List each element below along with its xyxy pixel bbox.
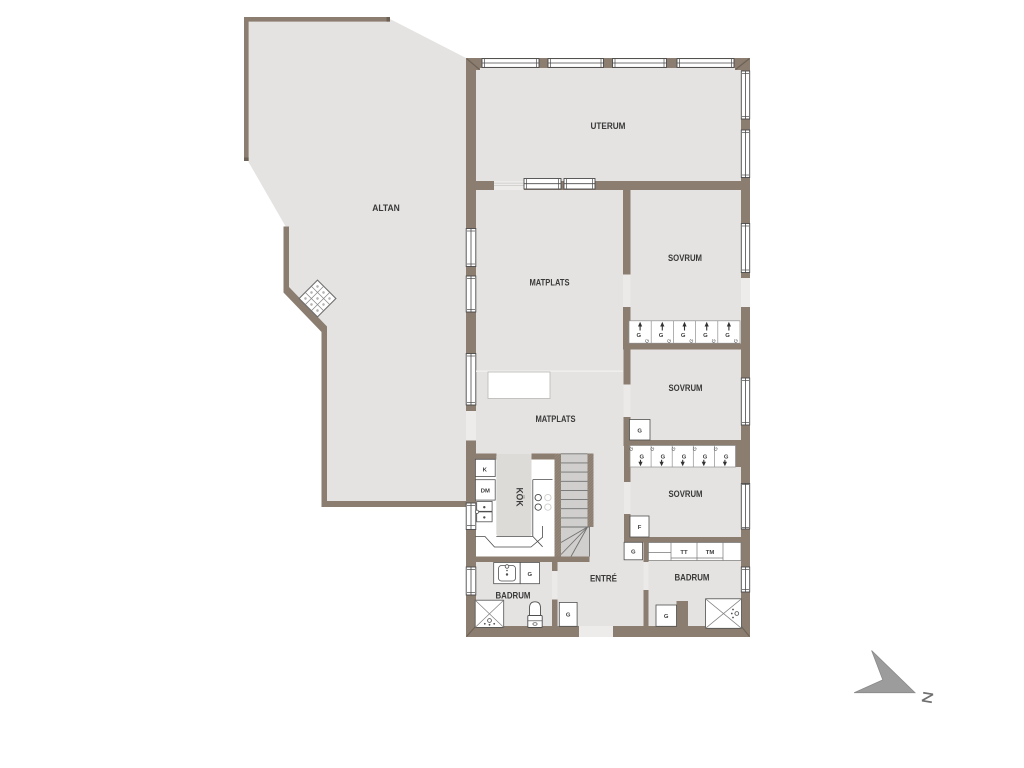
svg-text:G: G [703, 454, 708, 460]
svg-text:G: G [681, 333, 686, 339]
svg-text:TM: TM [706, 550, 715, 556]
svg-text:BADRUM: BADRUM [675, 573, 710, 583]
svg-text:G: G [637, 333, 642, 339]
svg-text:G: G [528, 572, 533, 578]
svg-text:BADRUM: BADRUM [496, 591, 531, 601]
svg-text:UTERUM: UTERUM [591, 121, 626, 131]
svg-text:G: G [637, 428, 642, 434]
svg-text:G: G [661, 454, 666, 460]
svg-text:SOVRUM: SOVRUM [669, 383, 703, 393]
svg-text:G: G [724, 454, 729, 460]
svg-text:SOVRUM: SOVRUM [669, 489, 703, 499]
svg-text:K: K [483, 468, 488, 474]
svg-text:G: G [631, 550, 636, 556]
svg-text:MATPLATS: MATPLATS [530, 278, 570, 288]
svg-text:ALTAN: ALTAN [372, 203, 400, 213]
svg-text:G: G [659, 333, 664, 339]
svg-text:SOVRUM: SOVRUM [668, 253, 702, 263]
svg-text:G: G [664, 614, 669, 620]
svg-text:KÖK: KÖK [515, 488, 525, 507]
svg-text:G: G [640, 454, 645, 460]
svg-text:ENTRÉ: ENTRÉ [590, 574, 617, 584]
svg-text:G: G [703, 333, 708, 339]
svg-text:G: G [682, 454, 687, 460]
svg-text:TT: TT [680, 550, 688, 556]
svg-text:G: G [566, 613, 571, 619]
svg-text:MATPLATS: MATPLATS [536, 414, 576, 424]
svg-text:DM: DM [481, 489, 490, 495]
svg-text:F: F [638, 525, 642, 531]
svg-text:G: G [725, 333, 730, 339]
